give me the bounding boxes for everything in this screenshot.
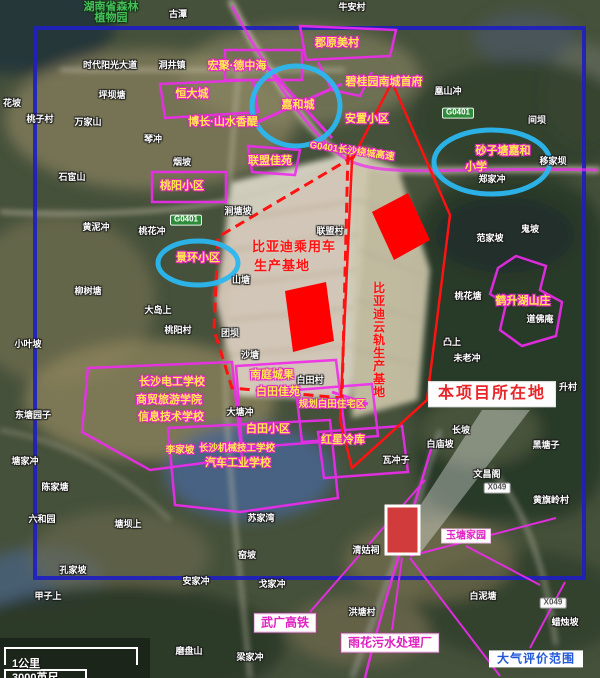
place-label: 蜡烛坡 (551, 618, 578, 628)
place-label: 凸上 (443, 338, 461, 348)
road-badge-g0401: G0401 (442, 108, 474, 119)
byd-base-label-1: 比亚迪乘用车 (252, 240, 336, 254)
place-label: 未老冲 (453, 354, 480, 364)
place-label: 大塘冲 (226, 408, 253, 418)
place-label: 鬼坡 (521, 225, 539, 235)
poi-label: 白田小区 (246, 423, 290, 435)
poi-label-jinghuan: 景环小区 (176, 252, 220, 264)
place-label: 孔家坡 (59, 566, 86, 576)
byd-base-label-2: 生产基地 (254, 259, 310, 273)
poi-label: 联盟佳苑 (248, 155, 292, 167)
poi-label: 恒大城 (176, 88, 209, 100)
label-forest-park-1: 湖南省森林 (84, 1, 139, 13)
byd-skyrail-label: 比亚迪云轨生产基地 (371, 282, 384, 399)
poi-label: 李家坡 (166, 446, 195, 456)
place-label: 间坝 (528, 116, 546, 126)
place-label: 黄泥冲 (82, 223, 109, 233)
road-badge-x049: X049 (484, 483, 511, 494)
poi-label: 长沙机械技工学校 (199, 444, 275, 454)
place-label: 团坝 (221, 329, 239, 339)
poi-label: 汽车工业学校 (205, 457, 271, 469)
yutang-label: 玉塘家园 (441, 529, 491, 544)
map-canvas: 湖南省森林植物园古潭牛安村时代阳光大道洞井镇凰山冲花坡桃子村万家山坪坝塘琴冲烟坡… (0, 0, 600, 678)
sewage-plant-label: 雨花污水处理厂 (341, 633, 439, 652)
place-label: 花坡 (3, 99, 21, 109)
place-label: 联盟村 (316, 227, 343, 237)
place-label: 桃花冲 (138, 227, 165, 237)
place-label: 桃阳村 (164, 326, 191, 336)
place-label: 洞井镇 (158, 61, 185, 71)
place-label: 山塘 (232, 276, 250, 286)
place-label: 甲子上 (34, 592, 61, 602)
poi-label: 博长·山水香醍 (188, 116, 258, 128)
place-label: 范家坡 (476, 234, 503, 244)
road-label-g0401: G0401长沙绕城高速 (309, 141, 395, 163)
place-label: 桃花塘 (454, 292, 481, 302)
place-label: 柳树塘 (74, 287, 101, 297)
place-label: 长坡 (452, 426, 470, 436)
road-badge-g0401: G0401 (170, 215, 202, 226)
poi-label: 安置小区 (345, 113, 389, 125)
poi-label: 信息技术学校 (138, 411, 204, 423)
place-label: 窑坡 (238, 551, 256, 561)
place-label: 洪塘村 (348, 608, 375, 618)
poi-label: 宏聚·德中海 (208, 60, 267, 72)
poi-label-school-2: 小学 (465, 161, 487, 173)
place-label: 道佛庵 (526, 315, 553, 325)
place-label: 梁家冲 (236, 653, 263, 663)
place-label: 瓦冲子 (382, 456, 409, 466)
place-label: 涧塘坡 (224, 207, 251, 217)
poi-label: 南庭城果 (250, 369, 294, 381)
place-label: 琴冲 (144, 135, 162, 145)
place-label: 桃子村 (26, 115, 53, 125)
place-label: 石宦山 (58, 173, 85, 183)
satellite-map-figure: 湖南省森林植物园古潭牛安村时代阳光大道洞井镇凰山冲花坡桃子村万家山坪坝塘琴冲烟坡… (0, 0, 600, 678)
place-label: 沙塘 (241, 351, 259, 361)
poi-label: 桃阳小区 (160, 180, 204, 192)
place-label: 文昌阁 (473, 470, 500, 480)
place-label: 白田村 (296, 376, 323, 386)
air-assessment-scope-label: 大气评价范围 (489, 650, 583, 667)
place-label: 小叶坡 (14, 340, 41, 350)
place-label: 古潭 (169, 10, 187, 20)
poi-label: 长沙电工学校 (139, 376, 205, 388)
place-label: 坪坝塘 (98, 91, 125, 101)
place-label: 东塘园子 (15, 411, 51, 421)
place-label: 六和园 (28, 515, 55, 525)
poi-label-jiahecheng: 嘉和城 (282, 99, 315, 111)
place-label: 白庙坡 (426, 440, 453, 450)
place-label: 郑家冲 (478, 175, 505, 185)
hsr-label: 武广高铁 (254, 613, 316, 632)
place-label: 时代阳光大道 (83, 61, 137, 71)
place-label: 大岛上 (144, 306, 171, 316)
road-badge-x049: X049 (540, 598, 567, 609)
place-label: 塘家冲 (11, 457, 38, 467)
place-label: 安家冲 (182, 577, 209, 587)
poi-label: 郡原美村 (315, 37, 359, 49)
place-label: 黑塘子 (532, 441, 559, 451)
poi-label: 白田佳苑 (256, 386, 300, 398)
place-label: 升村 (559, 383, 577, 393)
poi-label: 规划白田住宅区 (299, 400, 366, 410)
place-label: 苏家湾 (247, 514, 274, 524)
poi-label: 碧桂园南城首府 (346, 76, 423, 88)
place-label: 白泥塘 (469, 592, 496, 602)
project-site-label: 本项目所在地 (428, 381, 556, 407)
place-label: 凰山冲 (434, 87, 461, 97)
place-label: 移家坝 (539, 157, 566, 167)
poi-label: 鹤升湖山庄 (496, 295, 551, 307)
place-label: 塘坝上 (114, 520, 141, 530)
place-label: 清姑祠 (352, 546, 379, 556)
place-label: 烟坡 (173, 158, 191, 168)
poi-label: 商贸旅游学院 (136, 394, 202, 406)
place-label: 牛安村 (338, 3, 365, 13)
poi-label-school-1: 砂子塘嘉和 (476, 145, 531, 157)
place-label: 万家山 (74, 118, 101, 128)
place-label: 陈家塘 (41, 483, 68, 493)
poi-label: 红星冷库 (321, 434, 365, 446)
place-label: 戈家冲 (258, 580, 285, 590)
label-forest-park-2: 植物园 (95, 12, 128, 24)
place-label: 磨盘山 (175, 647, 202, 657)
place-label: 黄旗岭村 (533, 496, 569, 506)
